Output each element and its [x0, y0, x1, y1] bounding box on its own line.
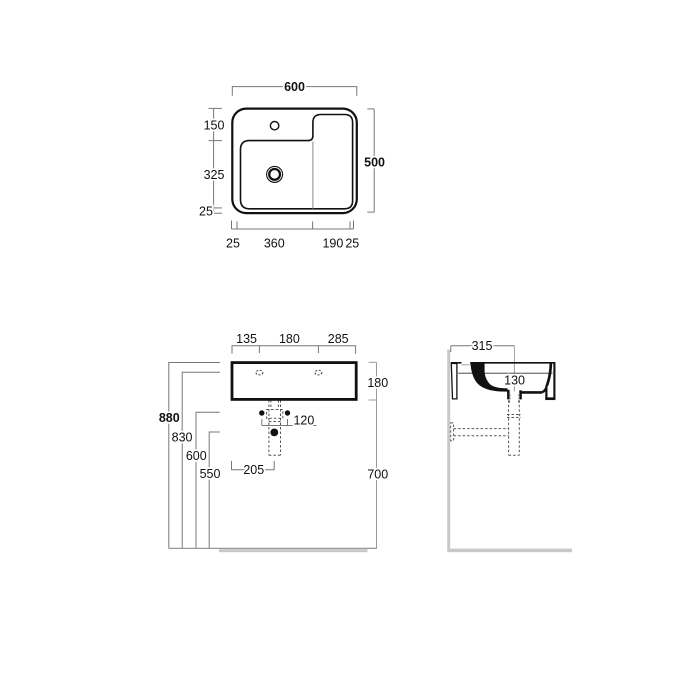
svg-text:120: 120	[293, 414, 314, 428]
svg-text:25: 25	[345, 237, 359, 251]
svg-text:880: 880	[159, 411, 180, 425]
svg-text:550: 550	[200, 467, 221, 481]
svg-text:315: 315	[472, 339, 493, 353]
svg-text:285: 285	[328, 332, 349, 346]
svg-text:130: 130	[504, 373, 525, 387]
svg-text:25: 25	[199, 205, 213, 219]
svg-text:830: 830	[172, 431, 193, 445]
svg-text:180: 180	[367, 376, 388, 390]
svg-text:500: 500	[364, 156, 385, 170]
svg-text:600: 600	[186, 449, 207, 463]
svg-text:135: 135	[236, 332, 257, 346]
svg-text:150: 150	[204, 119, 225, 133]
svg-text:700: 700	[367, 467, 388, 481]
svg-text:360: 360	[264, 237, 285, 251]
svg-text:180: 180	[279, 332, 300, 346]
svg-text:25: 25	[226, 237, 240, 251]
svg-text:600: 600	[284, 80, 305, 94]
svg-text:205: 205	[243, 463, 264, 477]
svg-text:190: 190	[322, 237, 343, 251]
svg-text:325: 325	[204, 168, 225, 182]
